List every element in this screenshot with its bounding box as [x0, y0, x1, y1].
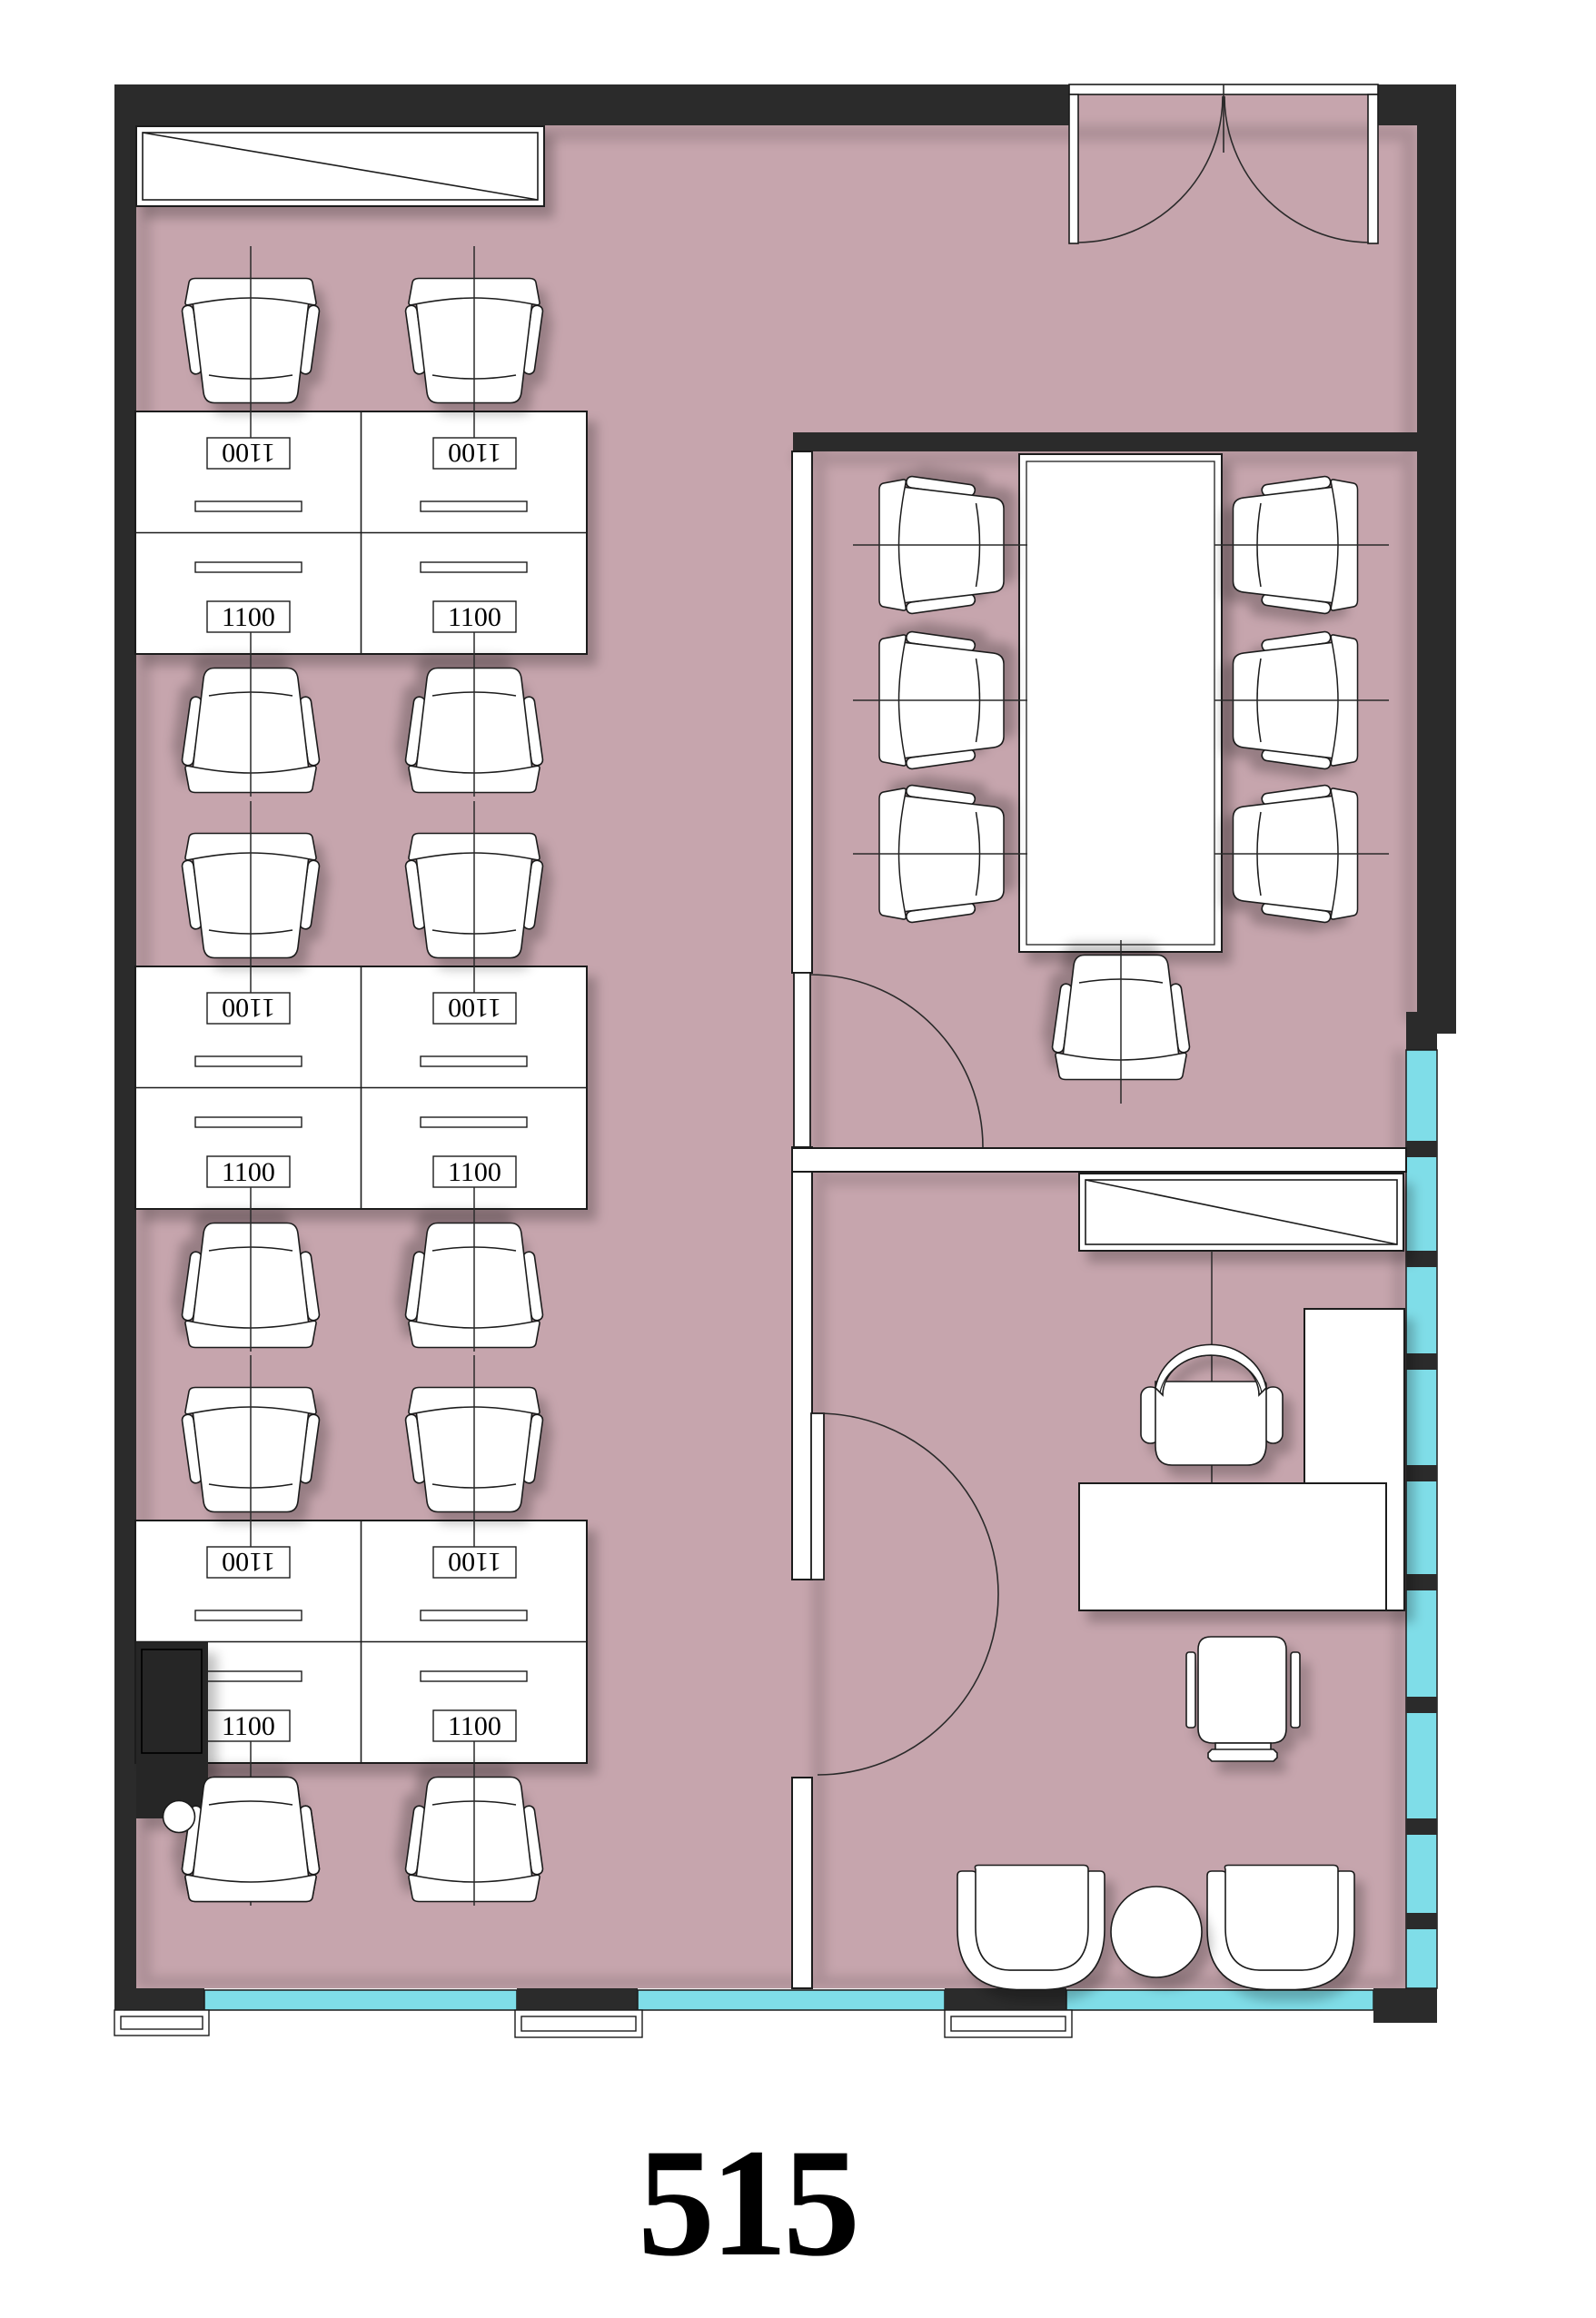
- svg-text:515: 515: [638, 2117, 856, 2288]
